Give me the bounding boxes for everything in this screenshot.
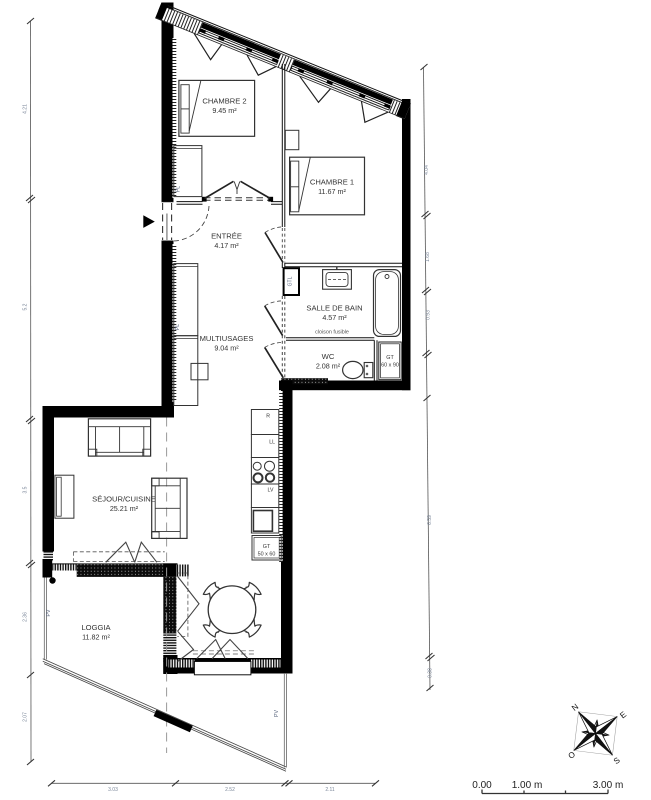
svg-text:PV: PV bbox=[274, 710, 280, 717]
svg-text:3.5: 3.5 bbox=[23, 486, 29, 493]
svg-text:1.00 m: 1.00 m bbox=[512, 780, 543, 791]
svg-text:0.00: 0.00 bbox=[472, 780, 492, 791]
svg-text:3.00 m: 3.00 m bbox=[593, 780, 624, 791]
svg-text:4.57 m²: 4.57 m² bbox=[322, 313, 347, 322]
svg-text:4.21: 4.21 bbox=[23, 104, 29, 114]
svg-text:PL: PL bbox=[176, 186, 182, 192]
svg-text:GT: GT bbox=[386, 355, 394, 361]
svg-text:0.93: 0.93 bbox=[426, 310, 432, 320]
svg-text:LV: LV bbox=[268, 488, 274, 494]
svg-text:2.08 m²: 2.08 m² bbox=[316, 362, 341, 371]
svg-text:1.68: 1.68 bbox=[425, 252, 431, 262]
svg-text:2.36: 2.36 bbox=[23, 612, 29, 622]
svg-text:11.82 m²: 11.82 m² bbox=[82, 633, 110, 642]
svg-text:R: R bbox=[266, 414, 270, 420]
svg-text:4.04: 4.04 bbox=[424, 165, 430, 175]
svg-text:SALLE DE BAIN: SALLE DE BAIN bbox=[306, 304, 362, 313]
svg-text:5.2: 5.2 bbox=[23, 303, 29, 310]
svg-text:0.38: 0.38 bbox=[428, 668, 434, 678]
svg-text:GTL: GTL bbox=[288, 276, 294, 286]
svg-text:60 x 90: 60 x 90 bbox=[381, 363, 399, 369]
svg-text:PV: PV bbox=[46, 609, 52, 616]
svg-text:SÉJOUR/CUISINE: SÉJOUR/CUISINE bbox=[92, 495, 156, 504]
svg-text:6.59: 6.59 bbox=[427, 515, 433, 525]
svg-text:MULTIUSAGES: MULTIUSAGES bbox=[200, 334, 254, 343]
svg-text:ENTRÉE: ENTRÉE bbox=[211, 232, 242, 241]
svg-text:9.04 m²: 9.04 m² bbox=[214, 344, 239, 353]
svg-text:CHAMBRE 1: CHAMBRE 1 bbox=[310, 178, 354, 187]
svg-text:LOGGIA: LOGGIA bbox=[81, 623, 111, 632]
svg-text:25.21 m²: 25.21 m² bbox=[110, 504, 139, 513]
svg-text:3.03: 3.03 bbox=[108, 787, 118, 793]
svg-text:9.45 m²: 9.45 m² bbox=[212, 106, 237, 115]
svg-text:50 x 60: 50 x 60 bbox=[258, 552, 276, 558]
svg-text:2.07: 2.07 bbox=[23, 712, 29, 722]
svg-text:GT: GT bbox=[263, 544, 271, 550]
svg-text:WC: WC bbox=[322, 352, 335, 361]
svg-text:cloison fusible: cloison fusible bbox=[315, 330, 349, 336]
svg-text:11.67 m²: 11.67 m² bbox=[318, 187, 346, 196]
svg-text:CHAMBRE 2: CHAMBRE 2 bbox=[202, 97, 246, 106]
svg-text:LL: LL bbox=[269, 440, 275, 446]
svg-text:2.52: 2.52 bbox=[225, 787, 235, 793]
svg-text:PL: PL bbox=[175, 324, 181, 330]
svg-text:2.11: 2.11 bbox=[325, 787, 335, 793]
svg-text:4.17 m²: 4.17 m² bbox=[214, 241, 239, 250]
